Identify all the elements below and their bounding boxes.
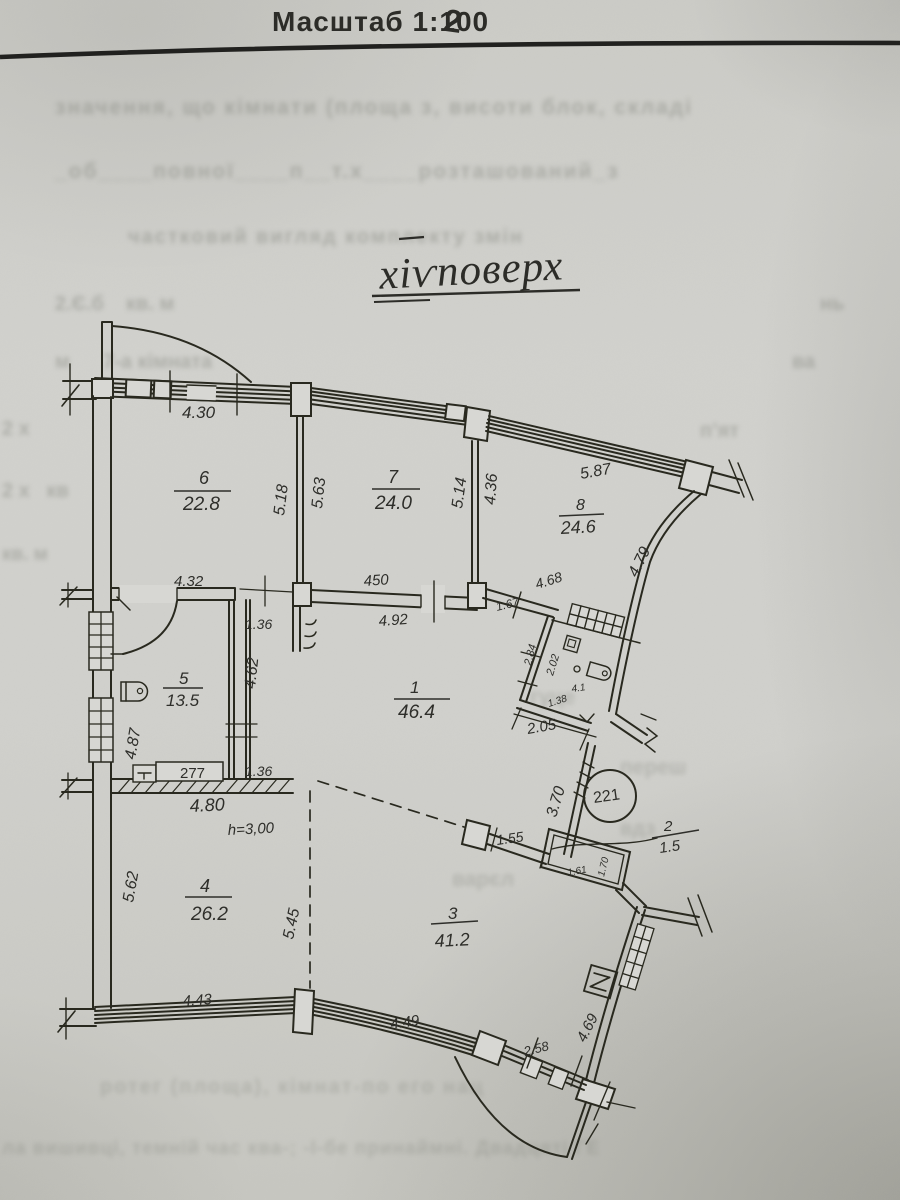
svg-text:4.68: 4.68: [533, 569, 564, 592]
svg-text:5.63: 5.63: [309, 477, 329, 510]
svg-text:h=3,00: h=3,00: [227, 820, 275, 839]
svg-text:4.80: 4.80: [189, 794, 225, 816]
svg-text:4.92: 4.92: [378, 611, 409, 630]
svg-text:4.30: 4.30: [182, 403, 216, 422]
svg-text:46.4: 46.4: [398, 702, 435, 723]
svg-text:3: 3: [448, 904, 458, 923]
svg-text:4.36: 4.36: [482, 473, 501, 505]
svg-text:5.14: 5.14: [449, 476, 470, 509]
svg-text:26.2: 26.2: [190, 904, 228, 925]
svg-text:2: 2: [663, 818, 673, 835]
svg-text:4.43: 4.43: [182, 991, 213, 1010]
svg-text:1.36: 1.36: [245, 763, 272, 779]
svg-text:4: 4: [200, 876, 210, 896]
svg-text:5: 5: [179, 669, 189, 688]
svg-text:4.62: 4.62: [242, 657, 262, 690]
svg-text:5.18: 5.18: [271, 483, 292, 516]
svg-text:3.70: 3.70: [544, 784, 569, 819]
svg-text:277: 277: [180, 765, 205, 782]
svg-text:5.45: 5.45: [280, 907, 303, 941]
svg-text:4.1: 4.1: [571, 682, 586, 695]
svg-text:5.87: 5.87: [579, 461, 614, 483]
svg-text:1.70: 1.70: [596, 856, 611, 878]
svg-text:4.87: 4.87: [122, 726, 144, 761]
svg-text:1.38: 1.38: [547, 693, 569, 710]
svg-text:221: 221: [592, 786, 621, 807]
svg-text:22.8: 22.8: [182, 494, 220, 515]
svg-text:6: 6: [199, 468, 210, 488]
svg-text:41.2: 41.2: [434, 929, 470, 951]
svg-text:2.02: 2.02: [544, 653, 562, 678]
svg-text:2.58: 2.58: [521, 1038, 551, 1059]
svg-text:13.5: 13.5: [166, 691, 200, 710]
svg-text:1: 1: [410, 678, 419, 697]
svg-text:2.05: 2.05: [525, 716, 558, 738]
svg-text:1.61: 1.61: [566, 864, 587, 879]
svg-text:4.32: 4.32: [174, 573, 204, 590]
svg-text:5.62: 5.62: [120, 870, 142, 904]
svg-text:450: 450: [363, 571, 390, 590]
svg-text:24.0: 24.0: [374, 493, 412, 514]
svg-text:1.5: 1.5: [658, 837, 682, 857]
svg-text:8: 8: [576, 497, 585, 514]
svg-text:4.69: 4.69: [573, 1010, 602, 1044]
svg-text:1.36: 1.36: [245, 616, 272, 632]
svg-text:24.6: 24.6: [559, 516, 597, 538]
svg-text:2.84: 2.84: [522, 643, 539, 668]
svg-text:7: 7: [388, 467, 399, 487]
svg-text:1.67: 1.67: [494, 594, 521, 614]
